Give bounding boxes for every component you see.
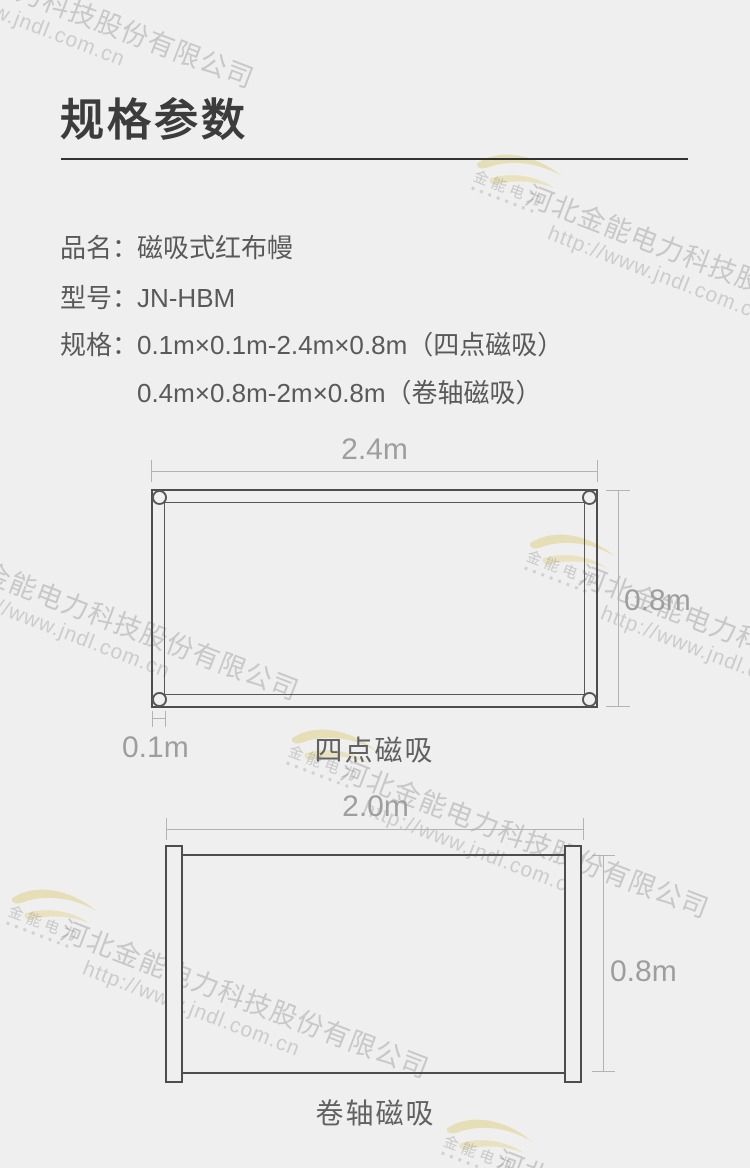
- d1-width-dim-label: 2.4m: [151, 433, 598, 467]
- title-underline: [61, 158, 688, 160]
- d1-width-dim-tick-right: [597, 460, 598, 482]
- model-value: JN-HBM: [137, 283, 235, 313]
- spec-page: 金能电力 河北金能电力科技股份有限公司 http://www.jndl.com.…: [0, 0, 750, 1168]
- d1-inner-frame: [164, 502, 585, 695]
- product-name-row: 品名：磁吸式红布幔: [60, 228, 293, 265]
- spec-content: 规格参数 品名：磁吸式红布幔 型号：JN-HBM 规格：0.1m×0.1m-2.…: [0, 0, 750, 1168]
- product-name-value: 磁吸式红布幔: [137, 233, 293, 263]
- d1-height-dim-line: [618, 491, 619, 707]
- product-name-label: 品名：: [60, 228, 137, 265]
- d2-width-dim-tick-left: [166, 818, 167, 840]
- d1-frame-dim-tick-right: [165, 711, 166, 727]
- d2-roller-right: [564, 845, 582, 1083]
- magnet-dot-top-left: [152, 490, 167, 505]
- d2-height-dim-line: [603, 856, 604, 1072]
- model-row: 型号：JN-HBM: [60, 278, 235, 315]
- spec-value-1: 0.1m×0.1m-2.4m×0.8m（四点磁吸）: [137, 330, 563, 360]
- d1-height-dim-tick-top: [606, 490, 630, 491]
- d1-frame-dim-tick-left: [152, 711, 153, 727]
- spec-row-2: 0.4m×0.8m-2m×0.8m（卷轴磁吸）: [60, 373, 542, 410]
- d1-width-dim-line: [151, 471, 598, 472]
- d1-frame-dim-line: [152, 718, 166, 719]
- magnet-dot-top-right: [582, 490, 597, 505]
- model-label: 型号：: [60, 278, 137, 315]
- magnet-dot-bottom-right: [582, 692, 597, 707]
- d1-width-dim-tick-left: [151, 460, 152, 482]
- d2-width-dim-label: 2.0m: [167, 790, 584, 824]
- magnet-dot-bottom-left: [152, 692, 167, 707]
- d1-caption: 四点磁吸: [151, 729, 598, 769]
- d1-height-dim-tick-bottom: [606, 706, 630, 707]
- d2-roller-left: [165, 845, 183, 1083]
- d2-height-dim-label: 0.8m: [610, 955, 677, 989]
- d2-height-dim-tick-bottom: [592, 1071, 615, 1072]
- spec-value-2: 0.4m×0.8m-2m×0.8m（卷轴磁吸）: [137, 378, 542, 408]
- d2-width-dim-line: [166, 829, 583, 830]
- d2-cloth-panel: [183, 854, 564, 1074]
- d2-width-dim-tick-right: [583, 818, 584, 840]
- d2-height-dim-tick-top: [592, 855, 615, 856]
- spec-row: 规格：0.1m×0.1m-2.4m×0.8m（四点磁吸）: [60, 325, 563, 362]
- d1-height-dim-label: 0.8m: [624, 584, 691, 618]
- d2-caption: 卷轴磁吸: [167, 1092, 584, 1132]
- page-title: 规格参数: [60, 84, 248, 148]
- spec-label: 规格：: [60, 325, 137, 362]
